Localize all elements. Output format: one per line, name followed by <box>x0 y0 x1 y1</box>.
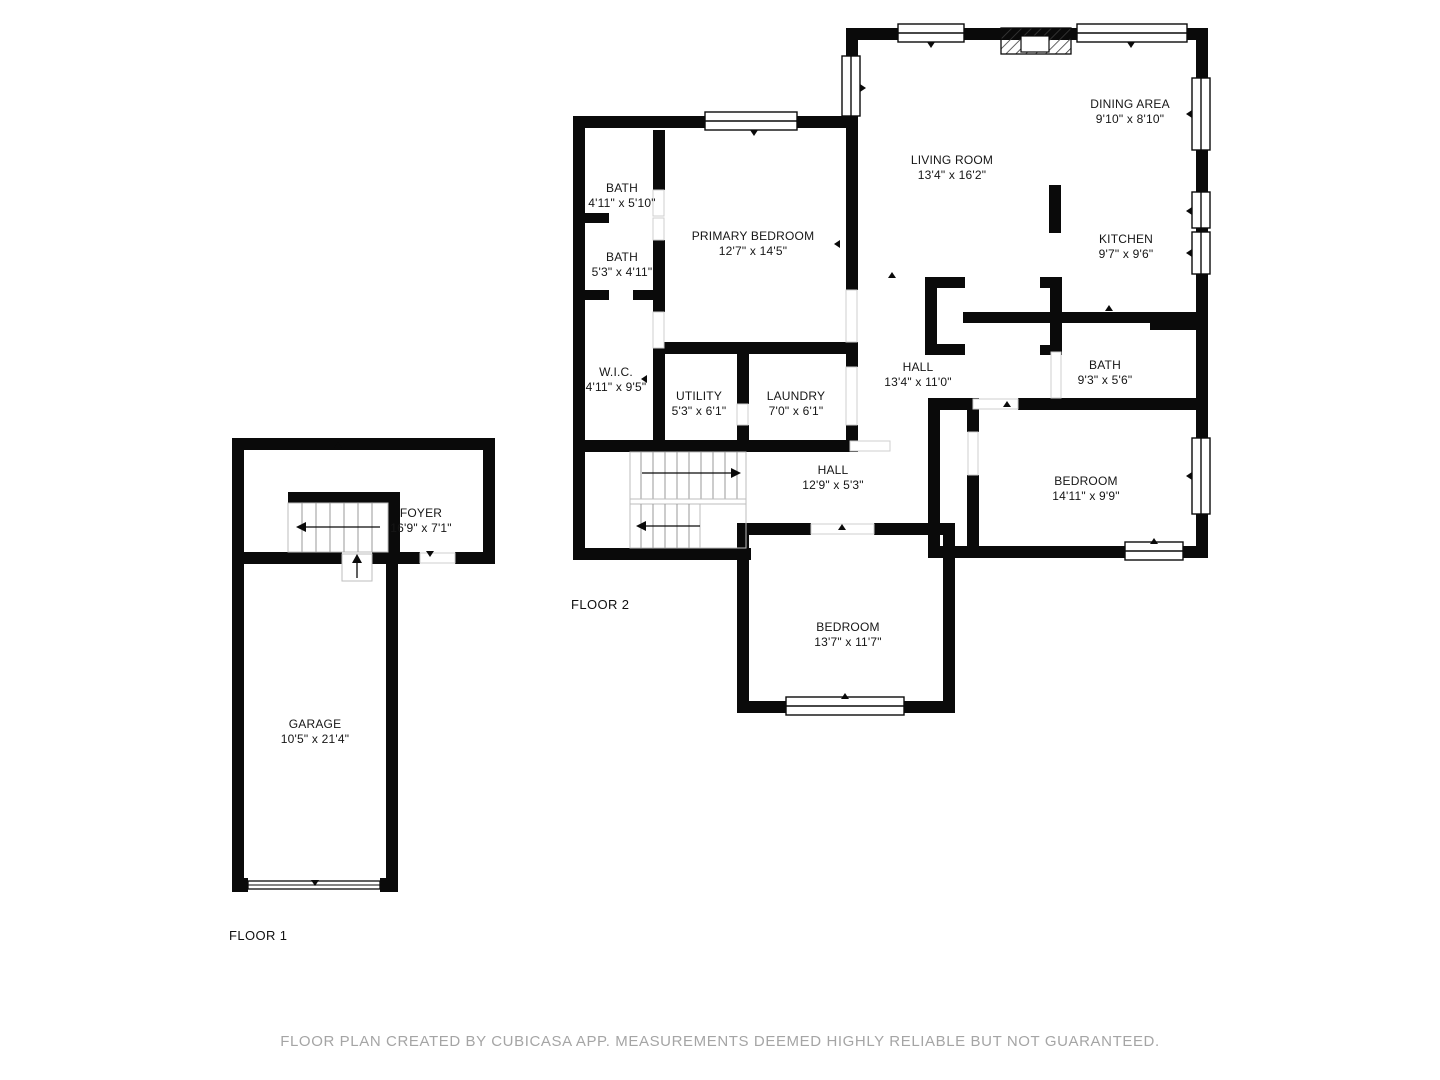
window <box>1192 192 1210 228</box>
room-name: HALL <box>802 463 864 478</box>
room-name: UTILITY <box>672 389 727 404</box>
door-opening <box>850 441 890 451</box>
room-name: BEDROOM <box>1052 474 1120 489</box>
measure-ticks <box>238 42 1192 886</box>
room-dimensions: 5'3" x 6'1" <box>672 404 727 419</box>
entry-step <box>342 554 372 581</box>
room-dimensions: 16'9" x 7'1" <box>390 521 452 536</box>
room-name: BATH <box>592 250 653 265</box>
room-name: BEDROOM <box>814 620 882 635</box>
stairs-up-arrow <box>642 468 741 478</box>
room-name: PRIMARY BEDROOM <box>692 229 815 244</box>
room-dimensions: 10'5" x 21'4" <box>281 732 349 747</box>
room-name: BATH <box>588 181 656 196</box>
room-label-primary-bedroom: PRIMARY BEDROOM 12'7" x 14'5" <box>692 229 815 259</box>
floor-plan-drawing <box>0 0 1440 1080</box>
room-label-hall-upper: HALL 13'4" x 11'0" <box>884 360 952 390</box>
room-name: LAUNDRY <box>767 389 826 404</box>
door-opening <box>653 312 664 348</box>
room-dimensions: 4'11" x 5'10" <box>588 196 656 211</box>
room-label-bath-main: BATH 9'3" x 5'6" <box>1078 358 1133 388</box>
room-name: DINING AREA <box>1090 97 1170 112</box>
room-label-kitchen: KITCHEN 9'7" x 9'6" <box>1099 232 1154 262</box>
room-name: LIVING ROOM <box>911 153 993 168</box>
floor1-caption: FLOOR 1 <box>229 928 287 943</box>
stairs-down-arrow <box>636 521 700 531</box>
room-dimensions: 13'4" x 11'0" <box>884 375 952 390</box>
room-dimensions: 4'11" x 9'5" <box>586 380 647 395</box>
room-dimensions: 12'7" x 14'5" <box>692 244 815 259</box>
floor1-door-openings <box>420 553 455 563</box>
room-dimensions: 5'3" x 4'11" <box>592 265 653 280</box>
floor2-stairs <box>630 452 746 548</box>
floor2-caption: FLOOR 2 <box>571 597 629 612</box>
window <box>786 697 904 715</box>
stairs-direction-arrow <box>296 522 380 532</box>
room-label-hall-lower: HALL 12'9" x 5'3" <box>802 463 864 493</box>
window <box>842 56 860 116</box>
room-dimensions: 12'9" x 5'3" <box>802 478 864 493</box>
door-opening <box>973 399 1018 409</box>
room-label-dining-area: DINING AREA 9'10" x 8'10" <box>1090 97 1170 127</box>
window <box>1077 24 1187 42</box>
room-label-laundry: LAUNDRY 7'0" x 6'1" <box>767 389 826 419</box>
door-opening <box>846 367 857 425</box>
floor1-walls <box>232 438 495 892</box>
disclaimer-text: FLOOR PLAN CREATED BY CUBICASA APP. MEAS… <box>280 1033 1160 1050</box>
door-opening <box>420 553 455 563</box>
room-dimensions: 7'0" x 6'1" <box>767 404 826 419</box>
room-label-garage: GARAGE 10'5" x 21'4" <box>281 717 349 747</box>
room-dimensions: 13'7" x 11'7" <box>814 635 882 650</box>
room-label-bedroom-right: BEDROOM 14'11" x 9'9" <box>1052 474 1120 504</box>
room-dimensions: 9'7" x 9'6" <box>1099 247 1154 262</box>
room-label-utility: UTILITY 5'3" x 6'1" <box>672 389 727 419</box>
door-opening <box>968 432 978 475</box>
door-opening <box>1051 352 1061 398</box>
fireplace <box>1001 28 1071 54</box>
room-dimensions: 13'4" x 16'2" <box>911 168 993 183</box>
door-opening <box>846 290 857 342</box>
room-label-bath-lower: BATH 5'3" x 4'11" <box>592 250 653 280</box>
floor1-stairs <box>288 503 388 552</box>
room-label-bedroom-bottom: BEDROOM 13'7" x 11'7" <box>814 620 882 650</box>
room-dimensions: 9'10" x 8'10" <box>1090 112 1170 127</box>
room-dimensions: 9'3" x 5'6" <box>1078 373 1133 388</box>
room-name: BATH <box>1078 358 1133 373</box>
door-opening <box>737 404 748 425</box>
room-name: FOYER <box>390 506 452 521</box>
window <box>1192 438 1210 514</box>
window <box>1192 78 1210 150</box>
door-opening <box>653 218 664 240</box>
room-dimensions: 14'11" x 9'9" <box>1052 489 1120 504</box>
room-name: W.I.C. <box>586 365 647 380</box>
floor2-windows <box>705 24 1210 715</box>
room-label-foyer: FOYER 16'9" x 7'1" <box>390 506 452 536</box>
window <box>898 24 964 42</box>
room-label-wic: W.I.C. 4'11" x 9'5" <box>586 365 647 395</box>
room-name: HALL <box>884 360 952 375</box>
room-name: KITCHEN <box>1099 232 1154 247</box>
window <box>1125 542 1183 560</box>
room-label-bath-upper: BATH 4'11" x 5'10" <box>588 181 656 211</box>
room-name: GARAGE <box>281 717 349 732</box>
floor-plan-page: BATH 4'11" x 5'10" BATH 5'3" x 4'11" PRI… <box>0 0 1440 1080</box>
window <box>1192 232 1210 274</box>
window <box>705 112 797 130</box>
room-label-living-room: LIVING ROOM 13'4" x 16'2" <box>911 153 993 183</box>
